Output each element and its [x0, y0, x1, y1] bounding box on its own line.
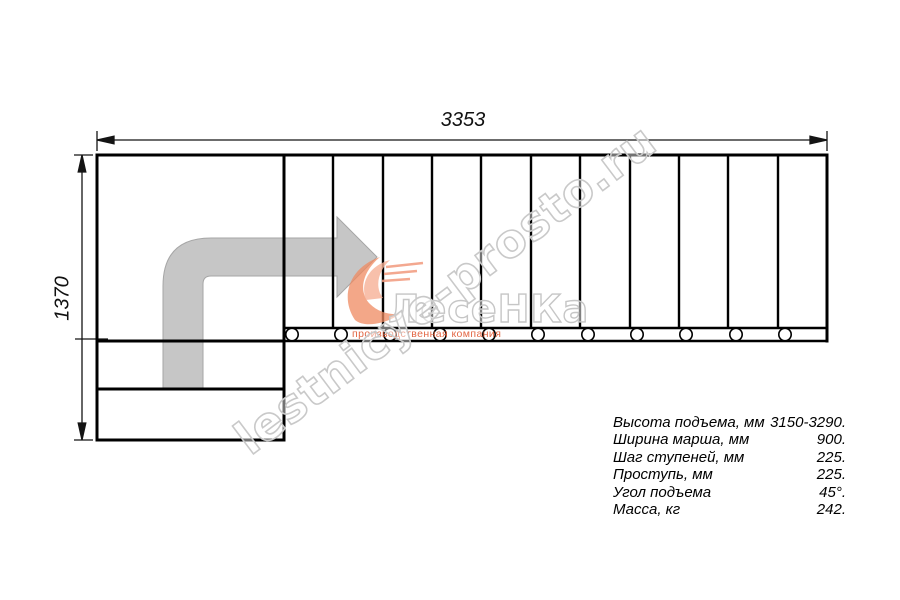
site-watermark: lestnicye-prosto.ru [224, 113, 666, 465]
dim-arrow-left-icon [97, 136, 114, 144]
spec-label: Ширина марша, мм [613, 431, 749, 448]
dim-height-label: 1370 [52, 269, 75, 329]
spec-label: Угол подъема [613, 484, 711, 501]
spec-label: Высота подъема, мм [613, 414, 765, 431]
spec-row: Шаг ступеней, мм 225. [613, 449, 846, 466]
stair-drawing-page: ЛесеНКа производственная компания lestni… [0, 0, 900, 600]
spec-label: Проступь, мм [613, 466, 713, 483]
spec-row: Проступь, мм 225. [613, 466, 846, 483]
spec-value: 45°. [819, 484, 846, 501]
spec-label: Масса, кг [613, 501, 680, 518]
dim-width-label: 3353 [400, 109, 526, 132]
spec-table: Высота подъема, мм 3150-3290. Ширина мар… [613, 414, 846, 518]
spec-value: 900. [817, 431, 846, 448]
dim-arrow-bottom-icon [78, 423, 86, 440]
spec-value: 225. [817, 449, 846, 466]
dim-arrow-top-icon [78, 155, 86, 172]
spec-value: 242. [817, 501, 846, 518]
spec-row: Высота подъема, мм 3150-3290. [613, 414, 846, 431]
spec-row: Угол подъема 45°. [613, 484, 846, 501]
spec-row: Масса, кг 242. [613, 501, 846, 518]
spec-value: 225. [817, 466, 846, 483]
spec-row: Ширина марша, мм 900. [613, 431, 846, 448]
spec-value: 3150-3290. [770, 414, 846, 431]
dim-arrow-right-icon [810, 136, 827, 144]
spec-label: Шаг ступеней, мм [613, 449, 744, 466]
